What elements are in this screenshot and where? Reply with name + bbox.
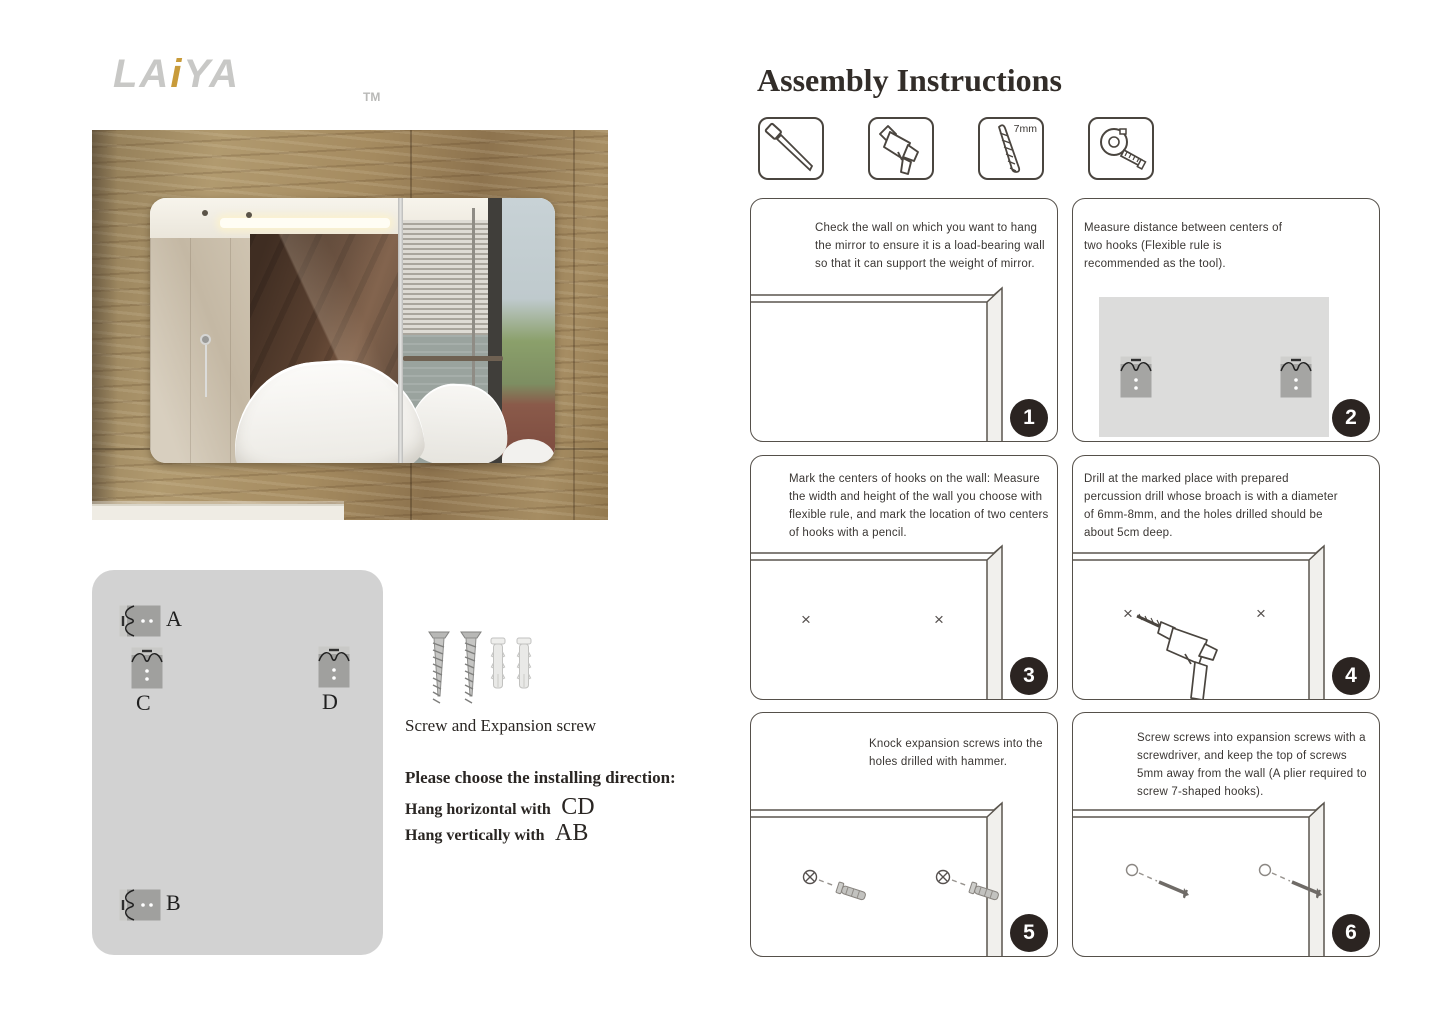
step-panel-2: Measure distance between centers of two … <box>1072 198 1380 442</box>
step-panel-4: Drill at the marked place with prepared … <box>1072 455 1380 700</box>
screwdriver-awl-icon <box>758 117 824 180</box>
step-panel-1: Check the wall on which you want to hang… <box>750 198 1058 442</box>
mirror-reflection-downlight <box>202 210 208 216</box>
hook-label-d: D <box>322 689 338 715</box>
wall-corner-drawing <box>751 544 1011 699</box>
mirror-reflection-glass-divider <box>398 198 403 463</box>
bathroom-photo <box>92 130 608 520</box>
hook-placement-diagram: A C D B <box>92 570 383 955</box>
direction-vertical-code: AB <box>555 820 588 846</box>
trademark-symbol: TM <box>363 90 380 104</box>
step-panel-3: Mark the centers of hooks on the wall: M… <box>750 455 1058 700</box>
mirror-reflection-outside-view <box>502 198 555 463</box>
screw-icon <box>1159 882 1189 898</box>
hook-c-icon <box>130 646 164 690</box>
wall-mirror <box>150 198 555 463</box>
expansion-anchor-icon <box>836 882 867 901</box>
direction-vertical-text: Hang vertically with <box>405 827 545 844</box>
drilled-hole-and-anchor <box>801 867 881 909</box>
step-5-text: Knock expansion screws into the holes dr… <box>869 735 1051 771</box>
hook-d-icon <box>317 645 351 689</box>
drilled-hole-and-anchor <box>934 867 1014 909</box>
wood-seam <box>573 130 575 520</box>
anchor-hole-and-screw <box>1123 861 1208 906</box>
step-2-number-badge: 2 <box>1332 399 1370 437</box>
page-title: Assembly Instructions <box>757 62 1062 99</box>
hook-icon <box>1279 355 1313 399</box>
brand-logo-text: LAiYA <box>113 52 240 96</box>
pencil-mark-x: × <box>934 610 944 630</box>
hook-a-icon <box>118 604 162 638</box>
screw-and-anchor-illustration <box>425 626 550 719</box>
electric-drill-icon <box>868 117 934 180</box>
step-4-number-badge: 4 <box>1332 657 1370 695</box>
step-6-number-badge: 6 <box>1332 914 1370 952</box>
direction-horizontal: Hang horizontal with CD <box>405 794 595 821</box>
photo-shadow <box>92 130 118 520</box>
hook-icon <box>1119 355 1153 399</box>
step-4-text: Drill at the marked place with prepared … <box>1084 470 1344 543</box>
expansion-anchor-icon <box>517 638 531 688</box>
hook-label-a: A <box>166 606 182 632</box>
step-panel-6: Screw screws into expansion screws with … <box>1072 712 1380 957</box>
step-panel-5: Knock expansion screws into the holes dr… <box>750 712 1058 957</box>
drill-drawing <box>1125 606 1265 699</box>
expansion-anchor-icon <box>491 638 505 688</box>
expansion-anchor-icon <box>969 882 1000 901</box>
step-1-number-badge: 1 <box>1010 399 1048 437</box>
mirror-reflection-towel-bar <box>403 356 503 361</box>
hook-b-icon <box>118 888 162 922</box>
direction-heading: Please choose the installing direction: <box>405 768 676 788</box>
screw-caption: Screw and Expansion screw <box>405 716 596 736</box>
step-3-text: Mark the centers of hooks on the wall: M… <box>789 470 1057 543</box>
pencil-mark-x: × <box>801 610 811 630</box>
tape-measure-icon <box>1088 117 1154 180</box>
screw-icon <box>461 632 481 703</box>
mirror-reflection-faucet <box>200 334 211 345</box>
drill-bit-icon: 7mm <box>978 117 1044 180</box>
step-2-text: Measure distance between centers of two … <box>1084 219 1294 273</box>
mirror-reflection-shower-hose <box>205 345 207 397</box>
step-6-text: Screw screws into expansion screws with … <box>1137 729 1375 802</box>
mirror-reflection-cove-light <box>220 218 390 228</box>
step-1-text: Check the wall on which you want to hang… <box>815 219 1053 273</box>
wall-corner-drawing <box>751 286 1011 441</box>
drill-bit-size-label: 7mm <box>1014 123 1037 135</box>
direction-vertical: Hang vertically with AB <box>405 820 588 847</box>
step-2-wall-diagram <box>1099 297 1329 437</box>
anchor-hole-and-screw <box>1256 861 1341 906</box>
screw-icon <box>1292 882 1322 898</box>
direction-horizontal-text: Hang horizontal with <box>405 801 551 818</box>
step-5-number-badge: 5 <box>1010 914 1048 952</box>
direction-horizontal-code: CD <box>561 794 594 820</box>
mirror-reflection-downlight <box>246 212 252 218</box>
hook-label-b: B <box>166 890 181 916</box>
brand-logo: LAiYA TM <box>113 52 313 112</box>
step-3-number-badge: 3 <box>1010 657 1048 695</box>
hook-label-c: C <box>136 690 151 716</box>
counter-top <box>92 504 344 520</box>
screw-icon <box>429 632 449 703</box>
